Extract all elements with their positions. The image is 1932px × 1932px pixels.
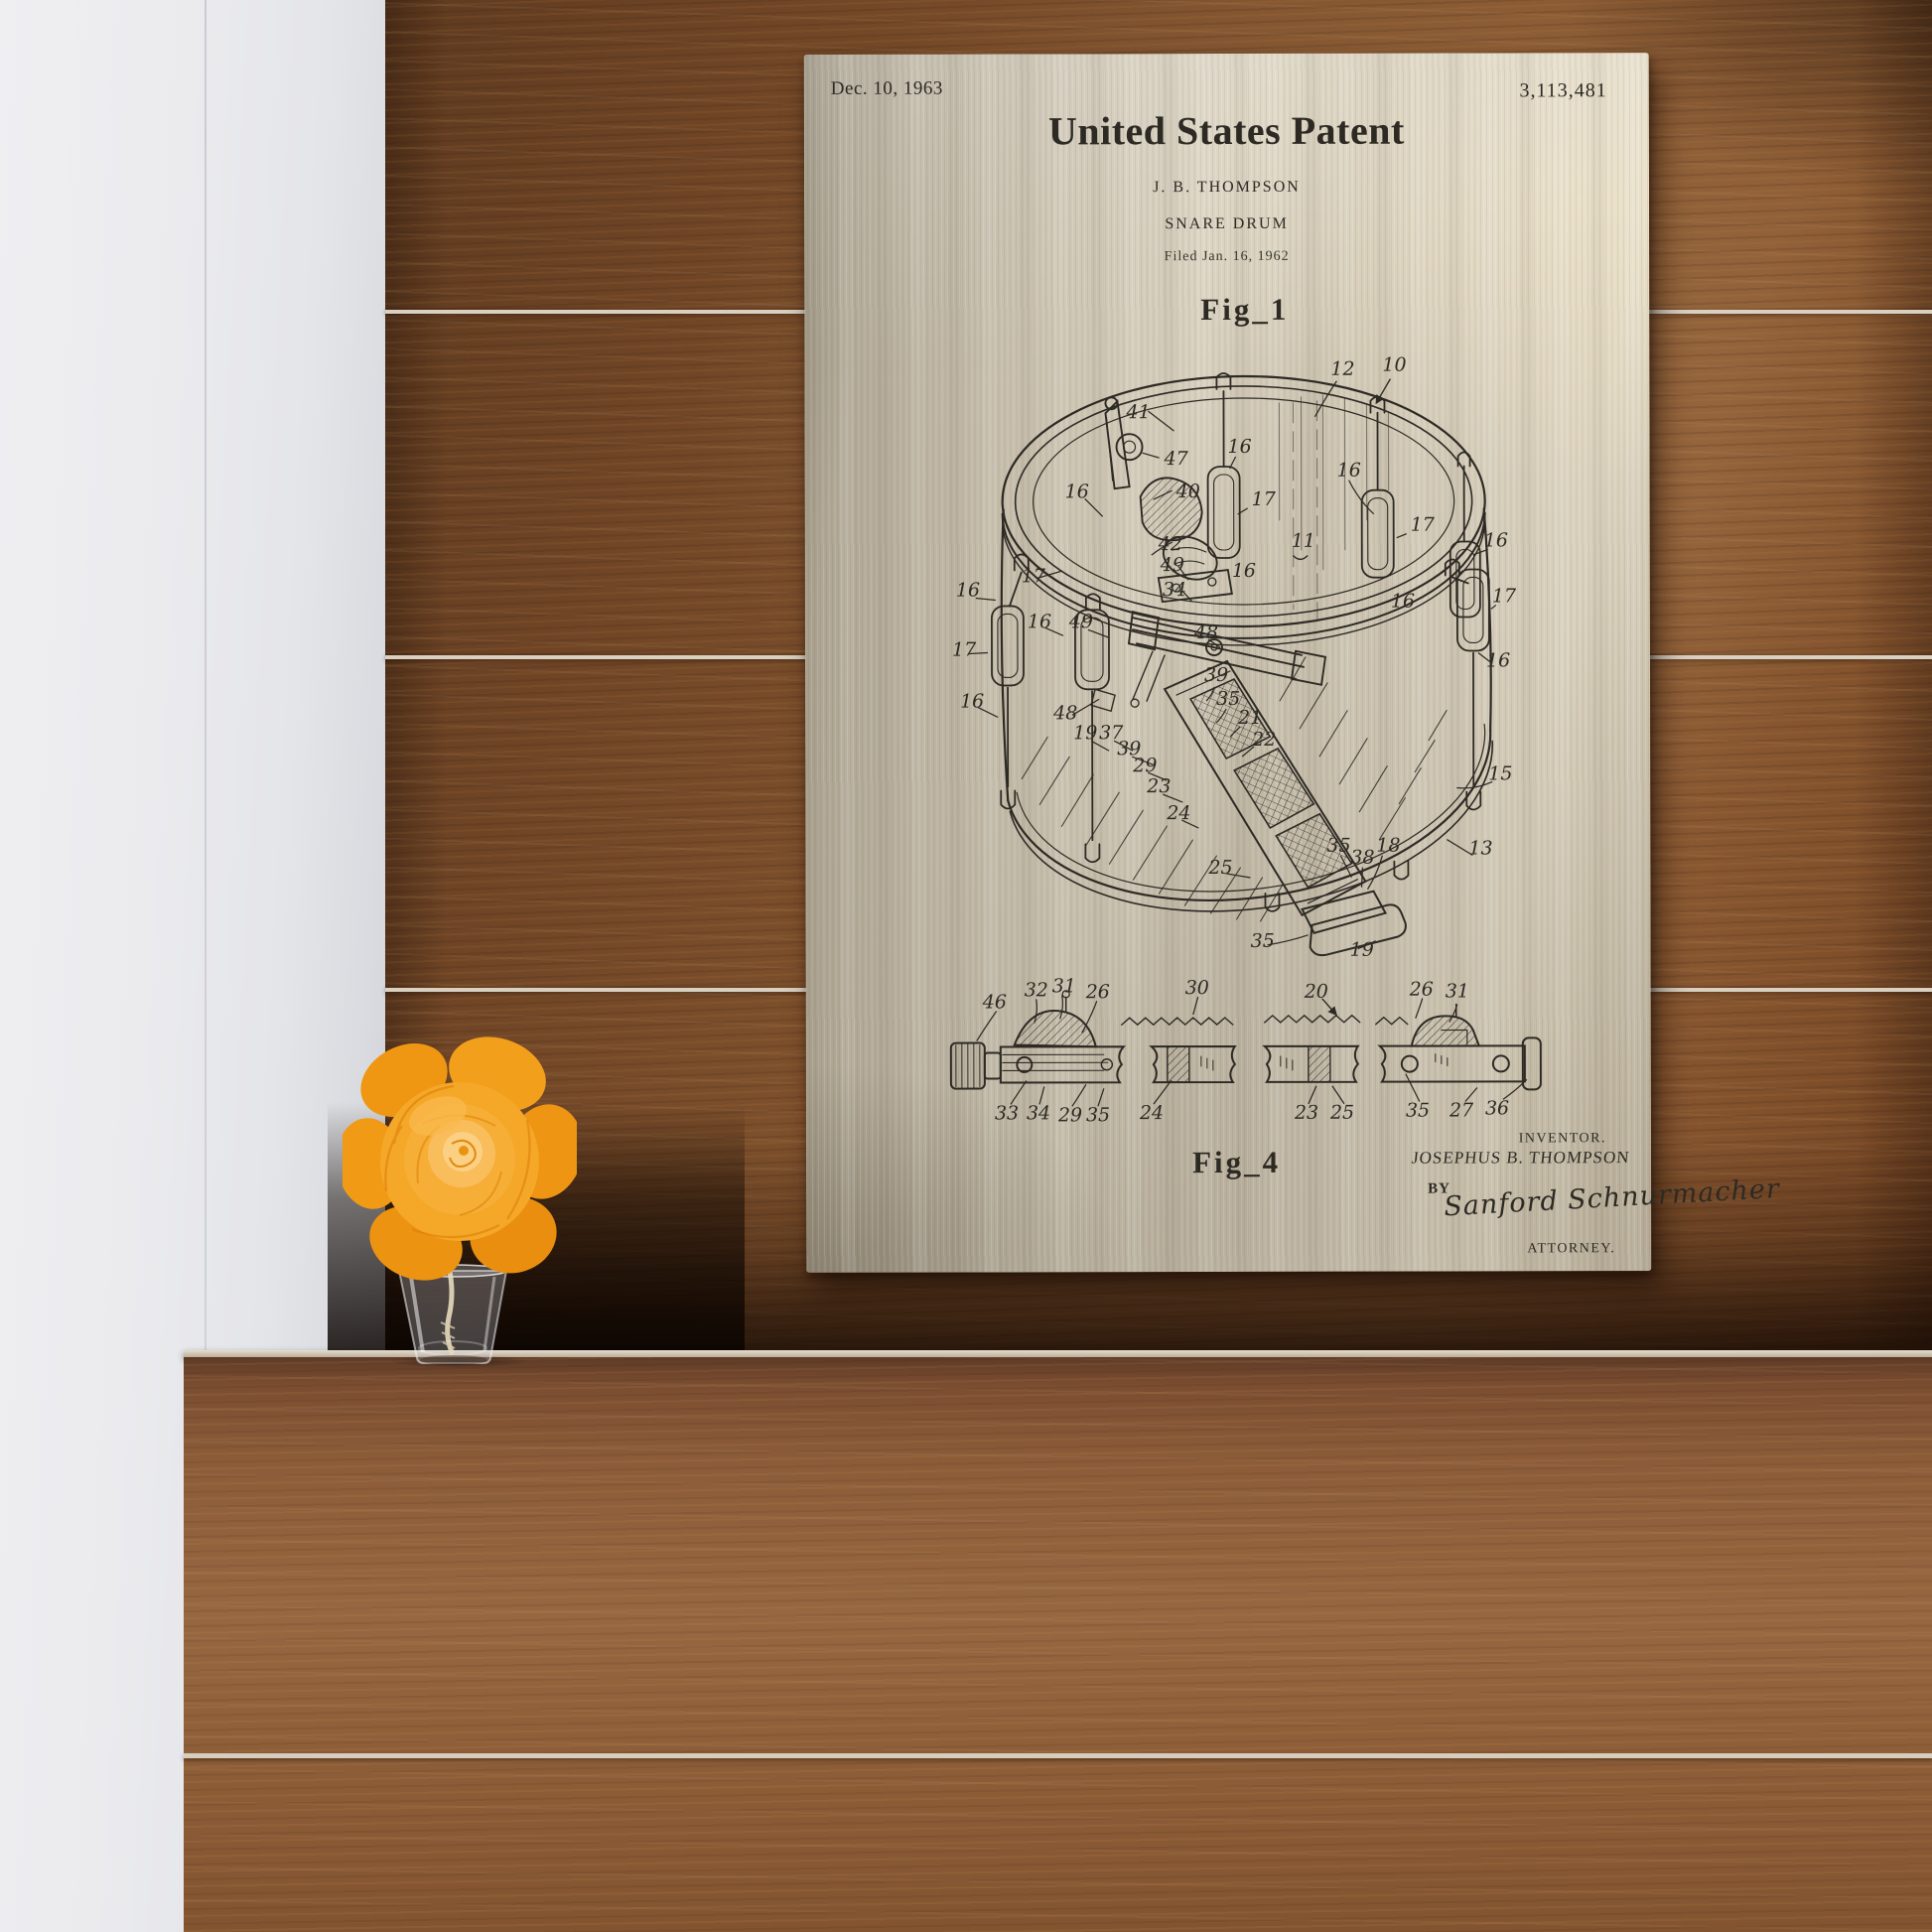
- fig1-ref: 22: [1251, 729, 1276, 751]
- patent-poster: Dec. 10, 1963 3,113,481 United States Pa…: [804, 53, 1652, 1273]
- fig1-ref: 35: [1216, 688, 1240, 710]
- fig1-ref: 21: [1237, 707, 1262, 729]
- fig1-ref: 17: [1252, 488, 1277, 510]
- fig4-ref: 26: [1409, 979, 1434, 1001]
- fig1-labels: 12 10 41 47 16 40 17 16 16 17 11 42 49 3…: [951, 353, 1517, 961]
- fig4-ref: 30: [1185, 977, 1209, 999]
- fig4-ref: 32: [1025, 979, 1048, 1001]
- fig4-ref: 35: [1086, 1104, 1110, 1126]
- fig1-ref: 17: [952, 639, 977, 661]
- fig1-ref: 49: [1160, 554, 1184, 576]
- fig1-ref: 13: [1468, 837, 1492, 859]
- fig1-ref: 24: [1166, 802, 1190, 824]
- fig1-ref: 48: [1193, 621, 1218, 643]
- fig1-ref: 23: [1146, 775, 1171, 797]
- fig1-ref: 47: [1164, 448, 1189, 470]
- fig1-ref: 15: [1488, 762, 1512, 784]
- fig4-drawing: [951, 990, 1541, 1091]
- fig1-drum-drawing: [991, 372, 1492, 955]
- fig4-ref: 26: [1085, 981, 1110, 1003]
- shelf-front: [184, 1357, 1932, 1932]
- fig1-ref: 16: [1228, 436, 1252, 458]
- patent-figures: 12 10 41 47 16 40 17 16 16 17 11 42 49 3…: [804, 53, 1652, 1273]
- fig4-ref: 36: [1485, 1097, 1509, 1119]
- fig4-labels: 46 32 31 26 30 20 26 31 33 34 29 35 24 2…: [982, 974, 1510, 1126]
- fig4-ref: 20: [1304, 981, 1328, 1003]
- fig1-ref: 25: [1207, 857, 1232, 879]
- fig1-ref: 16: [1065, 481, 1089, 502]
- fig4-ref: 35: [1406, 1100, 1430, 1122]
- fig1-ref: 39: [1204, 664, 1228, 686]
- orange-flower: [343, 1025, 577, 1299]
- room-photo: Dec. 10, 1963 3,113,481 United States Pa…: [0, 0, 1932, 1932]
- fig4-ref: 23: [1294, 1102, 1318, 1124]
- fig1-ref: 42: [1158, 533, 1182, 555]
- fig1-ref: 41: [1125, 401, 1150, 423]
- fig4-ref: 34: [1027, 1102, 1050, 1124]
- fig4-ref: 25: [1329, 1102, 1354, 1124]
- fig1-ref: 16: [1028, 611, 1051, 632]
- fig1-ref: 17: [1411, 514, 1436, 536]
- fig1-ref: 16: [1232, 560, 1256, 582]
- fig1-ref: 34: [1163, 579, 1186, 601]
- shelf-grain-texture: [184, 1357, 1932, 1932]
- fig1-ref: 19: [1350, 939, 1374, 961]
- fig1-ref: 49: [1068, 611, 1093, 632]
- fig1-ref: 16: [960, 691, 984, 713]
- fig1-ref: 16: [1391, 591, 1415, 613]
- fig1-ref: 35: [1326, 835, 1350, 857]
- fig1-ref: 16: [1486, 649, 1510, 671]
- fig1-ref: 18: [1376, 835, 1400, 857]
- fig4-ref: 33: [995, 1102, 1019, 1124]
- fig1-ref: 10: [1382, 354, 1406, 376]
- fig1-ref: 11: [1292, 530, 1315, 552]
- shelf-plank-seam: [184, 1753, 1932, 1758]
- fig1-ref: 19: [1073, 722, 1097, 744]
- fig4-ref: 27: [1449, 1099, 1474, 1121]
- fig4-ref: 46: [982, 991, 1007, 1013]
- fig1-ref: 16: [1484, 529, 1508, 551]
- fig1-ref: 29: [1132, 755, 1157, 776]
- fig1-ref: 17: [1022, 565, 1046, 587]
- fig4-ref: 24: [1139, 1102, 1164, 1124]
- fig1-ref: 16: [1337, 460, 1361, 482]
- fig1-ref: 38: [1350, 847, 1374, 869]
- fig4-ref: 31: [1052, 975, 1076, 997]
- fig1-ref: 40: [1175, 481, 1200, 502]
- fig1-ref: 35: [1251, 930, 1275, 952]
- fig1-ref: 12: [1330, 358, 1354, 380]
- fig4-ref: 29: [1057, 1104, 1082, 1126]
- fig1-ref: 48: [1052, 702, 1077, 724]
- fig1-ref: 16: [956, 580, 980, 602]
- fig1-ref: 17: [1492, 585, 1517, 607]
- fig4-ref: 31: [1446, 980, 1469, 1002]
